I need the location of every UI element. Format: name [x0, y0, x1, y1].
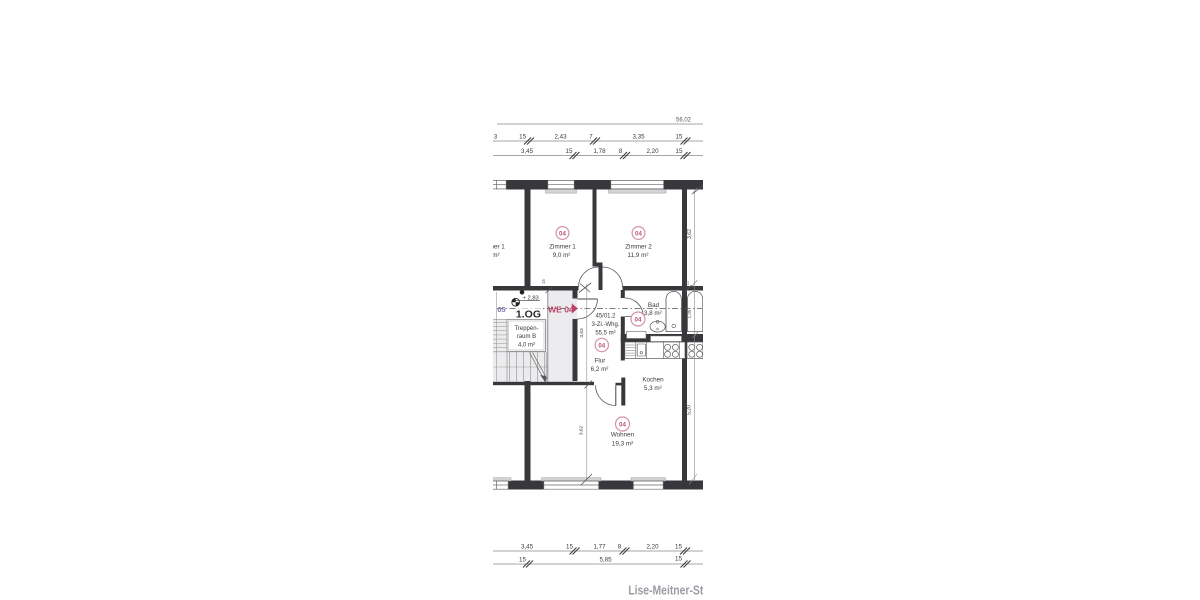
svg-text:8: 8 — [619, 148, 623, 155]
svg-text:5,3 m²: 5,3 m² — [644, 385, 662, 392]
svg-text:3,35: 3,35 — [632, 134, 645, 141]
svg-text:3,63: 3,63 — [579, 328, 585, 338]
svg-text:Treppen-: Treppen- — [514, 326, 538, 332]
svg-text:15: 15 — [566, 544, 573, 551]
svg-text:Flur: Flur — [595, 358, 606, 365]
svg-text:9,0 m²: 9,0 m² — [553, 252, 571, 259]
svg-text:+ 2,83: + 2,83 — [523, 296, 539, 302]
svg-text:45/01.2: 45/01.2 — [595, 314, 616, 320]
svg-text:11,9 m²: 11,9 m² — [628, 252, 649, 259]
svg-text:15: 15 — [676, 148, 683, 155]
svg-text:3,62: 3,62 — [579, 426, 585, 436]
svg-text:Lise-Meitner-St: Lise-Meitner-St — [628, 583, 704, 597]
svg-text:Zimmer 2: Zimmer 2 — [625, 244, 652, 251]
svg-text:15: 15 — [519, 557, 526, 564]
svg-text:3-Zi.-Whg.: 3-Zi.-Whg. — [591, 322, 619, 328]
svg-text:1,78: 1,78 — [593, 148, 606, 155]
svg-text:1,35: 1,35 — [687, 309, 692, 318]
svg-text:19,3 m²: 19,3 m² — [612, 441, 633, 448]
svg-text:56,02: 56,02 — [676, 118, 692, 124]
svg-text:15: 15 — [675, 544, 682, 551]
svg-text:55,5 m²: 55,5 m² — [595, 330, 615, 336]
svg-text:5,20: 5,20 — [687, 405, 693, 415]
svg-text:Wohnen: Wohnen — [611, 432, 635, 439]
svg-text:4,0 m²: 4,0 m² — [518, 342, 535, 348]
svg-text:15: 15 — [685, 280, 690, 285]
svg-text:3,62: 3,62 — [687, 229, 693, 239]
svg-text:15: 15 — [676, 134, 683, 141]
svg-text:3,8 m²: 3,8 m² — [644, 310, 662, 317]
svg-text:1.OG: 1.OG — [516, 309, 541, 321]
svg-text:05: 05 — [497, 305, 505, 314]
svg-text:15: 15 — [519, 134, 526, 141]
svg-text:15: 15 — [541, 279, 546, 284]
svg-text:raum B: raum B — [517, 334, 536, 340]
svg-text:1,77: 1,77 — [593, 544, 606, 551]
svg-text:2,43: 2,43 — [554, 134, 567, 141]
svg-text:2,20: 2,20 — [646, 148, 659, 155]
svg-text:Zimmer 1: Zimmer 1 — [478, 244, 505, 251]
svg-text:7: 7 — [589, 134, 593, 141]
svg-text:8: 8 — [618, 544, 622, 551]
svg-text:2,20: 2,20 — [646, 544, 659, 551]
svg-text:Kochen: Kochen — [642, 376, 664, 383]
svg-text:3,45: 3,45 — [521, 148, 534, 155]
svg-text:04: 04 — [598, 342, 605, 349]
svg-text:3: 3 — [494, 134, 498, 141]
svg-text:Zimmer 1: Zimmer 1 — [549, 244, 576, 251]
svg-text:5,85: 5,85 — [599, 557, 612, 564]
svg-text:WE 04: WE 04 — [548, 305, 574, 315]
svg-text:04: 04 — [559, 230, 566, 237]
svg-text:9,0 m²: 9,0 m² — [482, 252, 500, 259]
svg-text:04: 04 — [635, 230, 642, 237]
svg-text:04: 04 — [635, 316, 642, 323]
svg-text:04: 04 — [619, 421, 626, 428]
svg-text:15: 15 — [566, 148, 573, 155]
svg-text:3,45: 3,45 — [521, 544, 534, 551]
svg-text:15: 15 — [675, 556, 682, 563]
svg-text:Bad: Bad — [648, 302, 660, 309]
svg-text:6,2 m²: 6,2 m² — [591, 366, 609, 373]
